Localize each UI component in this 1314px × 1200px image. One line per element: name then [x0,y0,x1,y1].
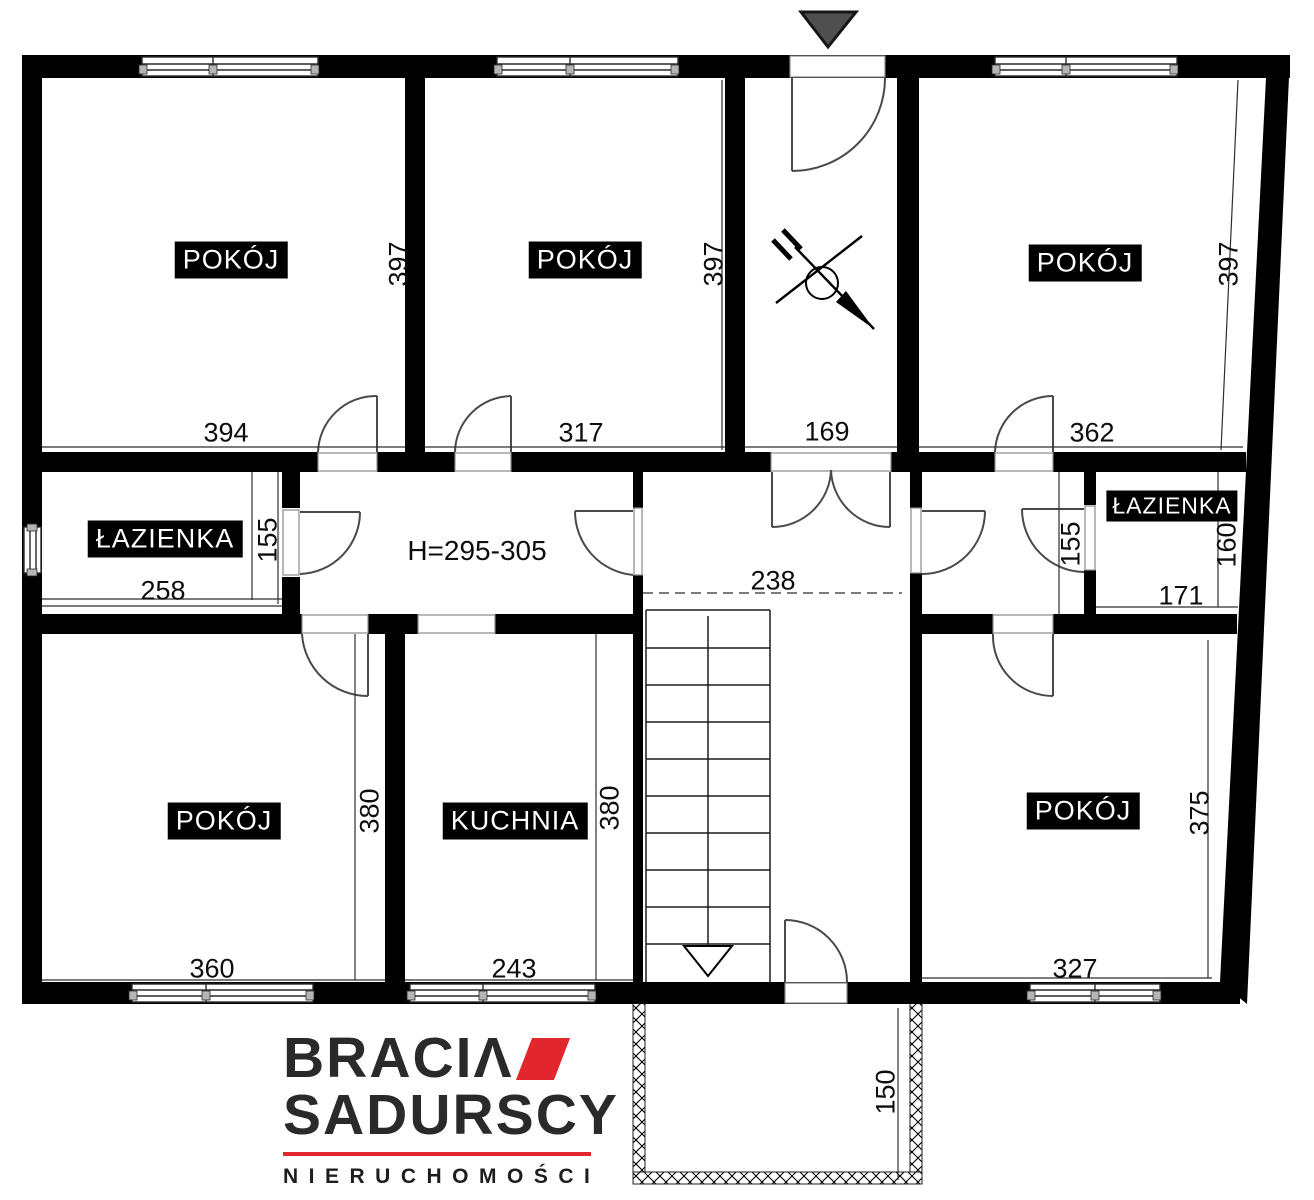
room-label-top-left: POKÓJ [175,242,288,279]
window [24,524,41,576]
room-label-bottom-left: POKÓJ [168,803,281,840]
dim-width-top-left: 394 [203,418,248,449]
door [575,511,633,575]
logo-text-top: BRACIΛ [283,1030,514,1087]
dim-entry-width: 169 [804,417,849,448]
door [922,511,985,574]
entrance-door [792,78,885,171]
dim-width-bath-right: 171 [1158,581,1203,612]
dim-vestibule-width: 155 [1056,521,1087,566]
window [139,57,319,76]
dim-width-bath-left: 258 [140,576,185,607]
dim-height-bath-left: 155 [253,517,284,562]
dim-height-bottom-right: 375 [1185,790,1216,835]
dim-height-top-left: 397 [384,241,415,286]
dim-width-top-right: 362 [1069,418,1114,449]
room-label-bath-left: ŁAZIENKA [88,521,243,558]
logo: BRACIΛ SADURSCY NIERUCHOMOŚCI [283,1030,619,1189]
floor-plan-drawing [0,0,1314,1200]
logo-red-mark-icon [515,1038,569,1080]
dim-width-bottom-left: 360 [189,954,234,985]
window [407,984,596,1002]
balcony-door [785,920,847,982]
entrance-marker-icon [801,12,856,47]
room-label-top-mid: POKÓJ [529,242,642,279]
floor-plan: POKÓJ POKÓJ POKÓJ ŁAZIENKA ŁAZIENKA POKÓ… [0,0,1314,1200]
window [129,984,314,1002]
logo-brand-line1: BRACIΛ [283,1030,619,1087]
logo-text-bottom: SADURSCY [283,1087,619,1144]
dim-height-bath-right: 160 [1212,522,1243,567]
dim-hall-width: 238 [750,566,795,597]
logo-tagline: NIERUCHOMOŚCI [283,1165,619,1189]
door [318,396,377,452]
door [993,634,1053,696]
dim-height-top-mid: 397 [699,241,730,286]
room-label-top-right: POKÓJ [1029,245,1142,282]
door [455,396,511,452]
window [1027,984,1161,1002]
north-arrow-icon [773,230,874,329]
dim-height-kitchen: 380 [595,785,626,830]
window [992,57,1178,76]
stairs-down-arrow-icon [684,946,732,976]
dim-width-bottom-right: 327 [1052,954,1097,985]
door [302,634,368,696]
logo-underline [283,1152,591,1156]
dim-height-top-right: 397 [1214,241,1245,286]
dim-width-top-mid: 317 [558,418,603,449]
door [300,512,360,574]
dim-height-bottom-left: 380 [355,788,386,833]
room-label-bath-right: ŁAZIENKA [1106,491,1237,522]
dim-width-kitchen: 243 [491,954,536,985]
room-label-bottom-right: POKÓJ [1027,793,1140,830]
stairs [646,610,770,982]
window [494,57,679,76]
dim-balcony-depth: 150 [871,1069,902,1114]
double-door [772,470,890,527]
ceiling-height-note: H=295-305 [407,535,546,567]
room-label-kitchen: KUCHNIA [443,803,588,840]
door [995,396,1053,452]
